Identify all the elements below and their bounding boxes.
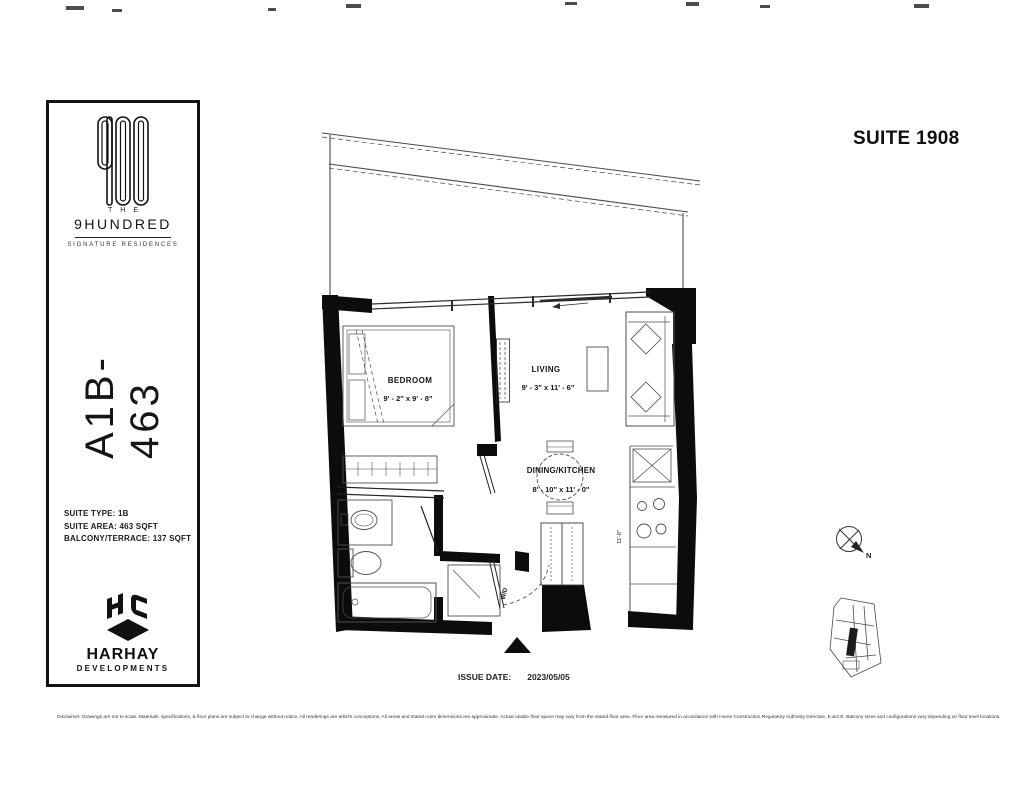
dining-kitchen-label: DINING/KITCHEN	[527, 466, 596, 475]
closet-dresser	[343, 456, 437, 483]
suite-specs: SUITE TYPE: 1B SUITE AREA: 463 SQFT BALC…	[64, 508, 191, 546]
keyplan	[830, 598, 881, 677]
compass-n-label: N	[866, 551, 871, 560]
entry-marker-triangle	[504, 637, 531, 653]
living-label: LIVING	[531, 365, 560, 374]
scan-artifacts	[66, 2, 929, 12]
coffee-table	[587, 347, 608, 391]
kitchen-counter	[630, 446, 677, 611]
brand-sidebar: THE 9HUNDRED SIGNATURE RESIDENCES A1B-46…	[46, 100, 200, 687]
sofa	[626, 312, 674, 426]
spec-suite-area: SUITE AREA: 463 SQFT	[64, 521, 191, 534]
bathroom-fixtures	[338, 500, 436, 622]
harhay-cube-logo-icon	[102, 585, 154, 643]
disclaimer-text: Disclaimer: Drawings are not to scale. M…	[57, 714, 1005, 719]
issue-date: ISSUE DATE:2023/05/05	[458, 672, 570, 682]
suite-title: SUITE 1908	[853, 128, 960, 150]
issue-date-label: ISSUE DATE:	[458, 672, 511, 682]
bedroom-dims: 9' - 2" x 9' - 8"	[383, 394, 432, 403]
brand-name: 9HUNDRED	[49, 216, 197, 232]
brand-divider	[75, 237, 171, 238]
spec-balcony-terrace: BALCONY/TERRACE: 137 SQFT	[64, 533, 191, 546]
washer-dryer-label: W/D	[501, 587, 509, 600]
issue-date-value: 2023/05/05	[527, 672, 570, 682]
floorplan-sheet: { "page": { "suite_title": "SUITE 1908",…	[0, 0, 1024, 791]
dining-kitchen-dims: 8' - 10" x 11' - 0"	[533, 485, 590, 494]
window-wall	[372, 292, 650, 311]
the-9hundred-logo-icon	[97, 116, 149, 206]
foyer-closet	[541, 523, 583, 585]
living-dims: 9' - 3" x 11' - 6"	[522, 383, 575, 392]
dining-table	[537, 441, 583, 514]
kitchen-dim-label: 11'-0"	[617, 530, 623, 544]
balcony-outline	[322, 133, 700, 297]
plan-code: A1B-463	[49, 291, 197, 459]
bedroom-label: BEDROOM	[388, 376, 433, 385]
spec-suite-type: SUITE TYPE: 1B	[64, 508, 191, 521]
brand-the: THE	[49, 207, 197, 214]
developer-subtitle: DEVELOPMENTS	[49, 664, 197, 673]
north-compass: N	[837, 527, 872, 561]
brand-tagline: SIGNATURE RESIDENCES	[49, 242, 197, 248]
developer-name: HARHAY	[49, 646, 197, 664]
